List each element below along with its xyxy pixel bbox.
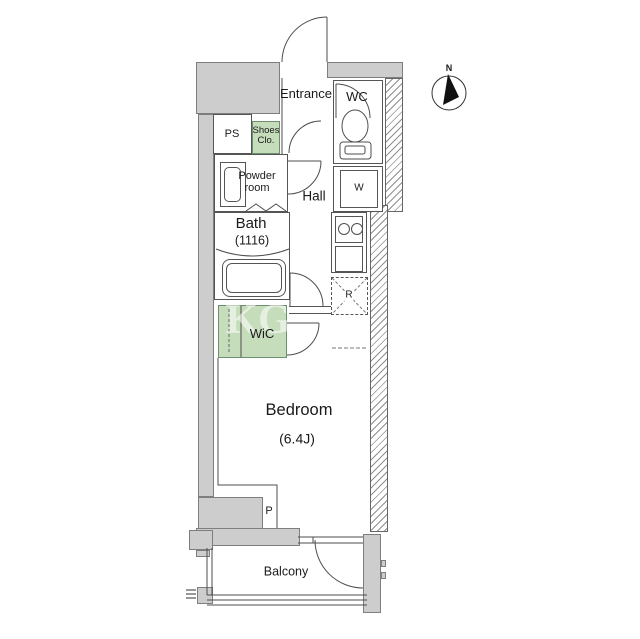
balcony-drain-ticks [186, 590, 196, 598]
wic-door-arc [287, 323, 319, 355]
label-refrigerator: R [344, 291, 353, 302]
toilet-bowl [342, 110, 368, 142]
bedroom-door-arc [290, 273, 323, 306]
bath-folding-door [246, 204, 286, 211]
hall-door-arc [289, 121, 321, 153]
bath-floor-curve [216, 249, 289, 256]
balcony-window [298, 537, 363, 543]
toilet-tank-lid [345, 146, 365, 154]
label-bedroom-size: (6.4J) [279, 431, 315, 446]
label-powder-room: Powder room [238, 171, 275, 195]
balcony-bottom-rail [207, 595, 367, 605]
label-compass-north: N [446, 64, 453, 74]
label-bath-size: (1116) [235, 234, 269, 248]
label-entrance: Entrance [280, 87, 332, 101]
label-washing-machine: W [354, 184, 363, 195]
burner-right [352, 224, 363, 235]
label-wic: WiC [250, 327, 275, 341]
bedroom-floor-boundary [218, 358, 277, 528]
label-bedroom: Bedroom [266, 402, 333, 420]
label-hall: Hall [302, 190, 325, 205]
floor-plan: KG Entrance WC PS Shoes Clo. Powder room… [0, 0, 640, 639]
label-ps: PS [225, 129, 240, 141]
label-shoes-closet: Shoes Clo. [253, 126, 280, 147]
label-balcony: Balcony [264, 565, 308, 579]
label-pillar: P [265, 506, 272, 518]
compass-needle [443, 74, 459, 105]
balcony-door-arc [315, 540, 363, 588]
entrance-door-arc [282, 17, 327, 62]
burner-left [339, 224, 350, 235]
label-bath: Bath [236, 216, 267, 232]
label-wc: WC [346, 90, 368, 104]
balcony-left-rail [207, 548, 212, 595]
